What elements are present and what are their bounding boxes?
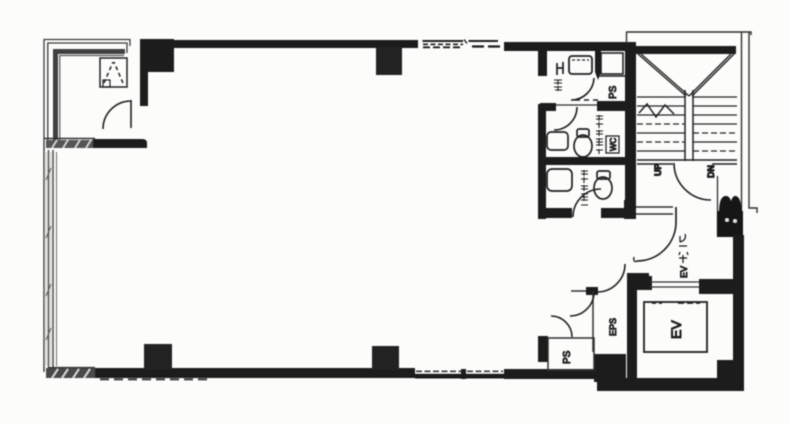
svg-text:WC: WC — [609, 137, 618, 151]
svg-text:EV: EV — [679, 266, 689, 278]
svg-text:EPS: EPS — [608, 318, 618, 336]
svg-text:PS: PS — [562, 350, 573, 364]
svg-text:UP: UP — [653, 163, 663, 176]
svg-text:PS: PS — [608, 85, 619, 99]
svg-text:EV: EV — [668, 320, 684, 339]
svg-text:DN: DN — [706, 165, 716, 178]
